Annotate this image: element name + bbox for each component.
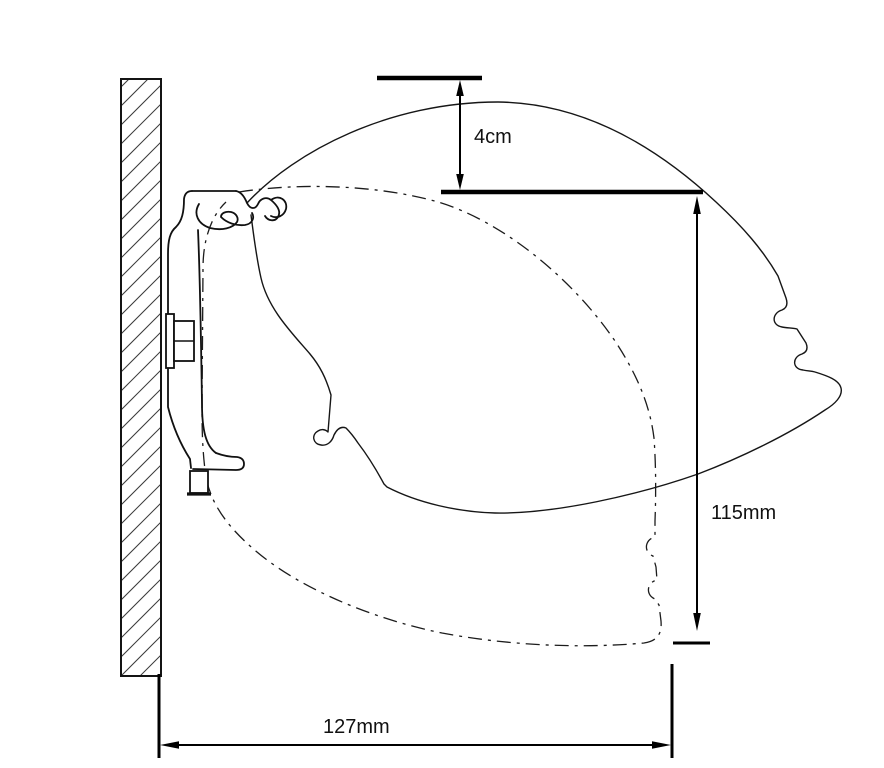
wall-section [121,79,161,676]
cassette-outline-lowered [202,186,661,645]
bracket-lower-arm [193,453,244,470]
bracket-hook-curls [236,191,286,220]
dim-115mm-label: 115mm [711,502,776,524]
dim-4cm-label: 4cm [474,126,512,148]
wall-body [121,79,161,676]
cassette-outline-raised [247,102,841,513]
drawing-canvas: 4cm 115mm 127mm [40,16,884,768]
dim-127mm-label: 127mm [323,716,390,738]
bolt-washer-plate [166,314,174,368]
bracket-inner-claw [196,204,253,229]
dim-127mm-arrowhead-right [652,741,671,749]
bracket-inner-channel [198,230,216,453]
dim-115mm-arrowhead-down [693,613,701,631]
dim-4cm-arrowhead-down [456,174,464,190]
bracket-end-stop [190,471,208,493]
mounting-bracket [166,191,286,494]
dim-115mm-arrowhead-up [693,196,701,214]
dimension-127mm: 127mm [159,664,672,758]
dimension-4cm: 4cm [377,78,512,190]
dimension-115mm: 115mm [441,192,776,643]
dim-127mm-arrowhead-left [160,741,179,749]
technical-drawing: 4cm 115mm 127mm [40,16,884,768]
dim-4cm-arrowhead-up [456,80,464,96]
